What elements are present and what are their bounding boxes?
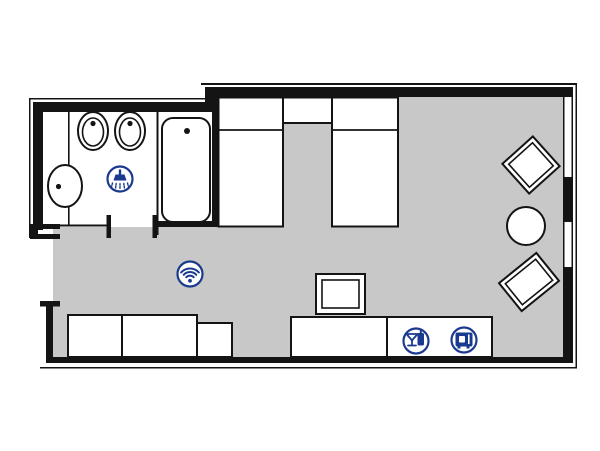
wall-bathroom-divider [212,87,218,227]
safe-foot-left [458,347,461,349]
toilet [78,112,108,150]
wifi-icon [178,262,203,287]
bidet-drain [127,121,132,126]
safe-icon [452,328,477,353]
shower-head [114,175,127,181]
wall-right-pier-upper [563,177,573,222]
window-lower-outer-line [572,222,574,267]
minibar-icon-circle [404,329,429,354]
wifi-dot [188,279,192,283]
bed-right-frame [332,98,398,227]
wall-top-main [205,87,573,97]
wall-outline-right [576,83,578,369]
tv-unit [316,274,365,314]
shower-icon [108,167,133,192]
lowboard [122,315,197,357]
bathroom-door-post-right [153,215,158,238]
tv-screen [322,280,359,308]
wall-outline-bottom [40,367,577,369]
floor-plan [0,0,600,451]
wall-left-lower [46,301,53,363]
window-upper-inner-line [563,97,565,177]
bench-small [197,323,232,357]
entry-frame-upper-tick [38,224,60,229]
luggage-bench [68,315,122,357]
wall-right-lower [563,267,573,363]
twin-bed-left [219,98,284,227]
wall-outline-bath-left [29,98,31,238]
wifi-icon-circle [178,262,203,287]
safe-door-panel [459,336,465,343]
wall-outline-top [201,83,577,85]
toilet-drain [90,121,95,126]
minibar-bottle-neck [420,330,422,335]
floor-plan-drawing [0,0,600,451]
wall-bathroom-left [33,102,43,230]
bed-left-frame [219,98,284,227]
bathtub [162,118,210,222]
window-lower-inner-line [563,222,565,267]
bidet [115,112,145,150]
safe-handle-slot [468,335,470,345]
desk-sideboard [291,317,387,357]
washbasin-drain [56,184,61,189]
wall-outline-bath-top [29,98,205,100]
bathtub-partition-line [157,112,159,235]
twin-bed-right [332,98,398,227]
window-upper-outer-line [572,97,574,177]
bathtub-drain [184,128,190,134]
minibar-icon [404,329,429,354]
entry-frame-lower-tick [30,234,60,239]
nightstand [283,98,332,124]
minibar-bottle-body [418,333,425,346]
safe-foot-right [467,347,470,349]
wall-bathroom-top [33,102,212,112]
bathroom-door-post-left [107,215,112,238]
bathroom-fixtures [48,112,210,222]
round-table [507,207,545,245]
washbasin [48,165,82,207]
washbasin-bowl [48,165,82,207]
